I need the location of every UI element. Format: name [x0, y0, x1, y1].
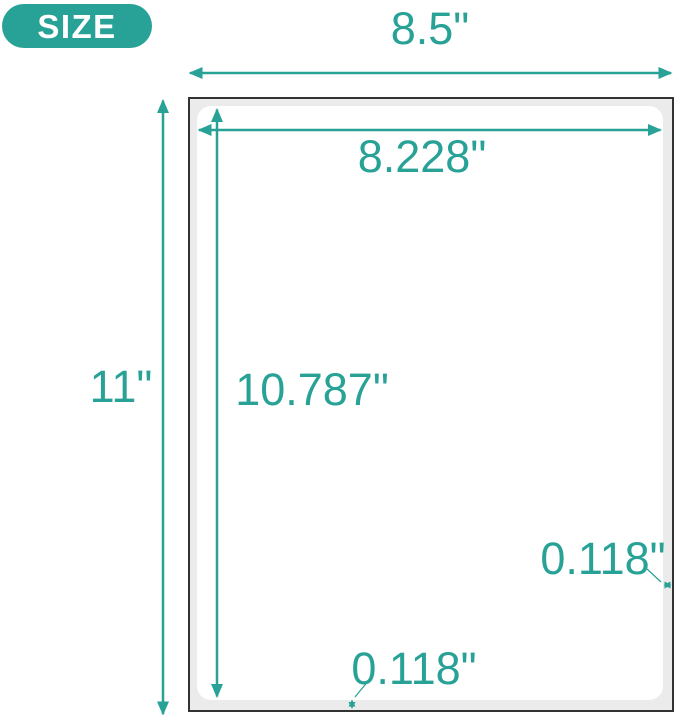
- inner-height-label: 10.787": [235, 367, 389, 412]
- right-margin-label: 0.118": [540, 536, 665, 581]
- size-badge-label: SIZE: [37, 10, 116, 43]
- sheet-width-label: 8.5": [391, 6, 470, 51]
- label-size-diagram: SIZE 8.5" 8.228" 11" 10.787" 0.: [0, 0, 679, 721]
- inner-width-label: 8.228": [358, 134, 487, 179]
- size-badge: SIZE: [2, 4, 152, 48]
- sheet-height-label: 11": [90, 364, 153, 409]
- bottom-margin-label: 0.118": [351, 646, 476, 691]
